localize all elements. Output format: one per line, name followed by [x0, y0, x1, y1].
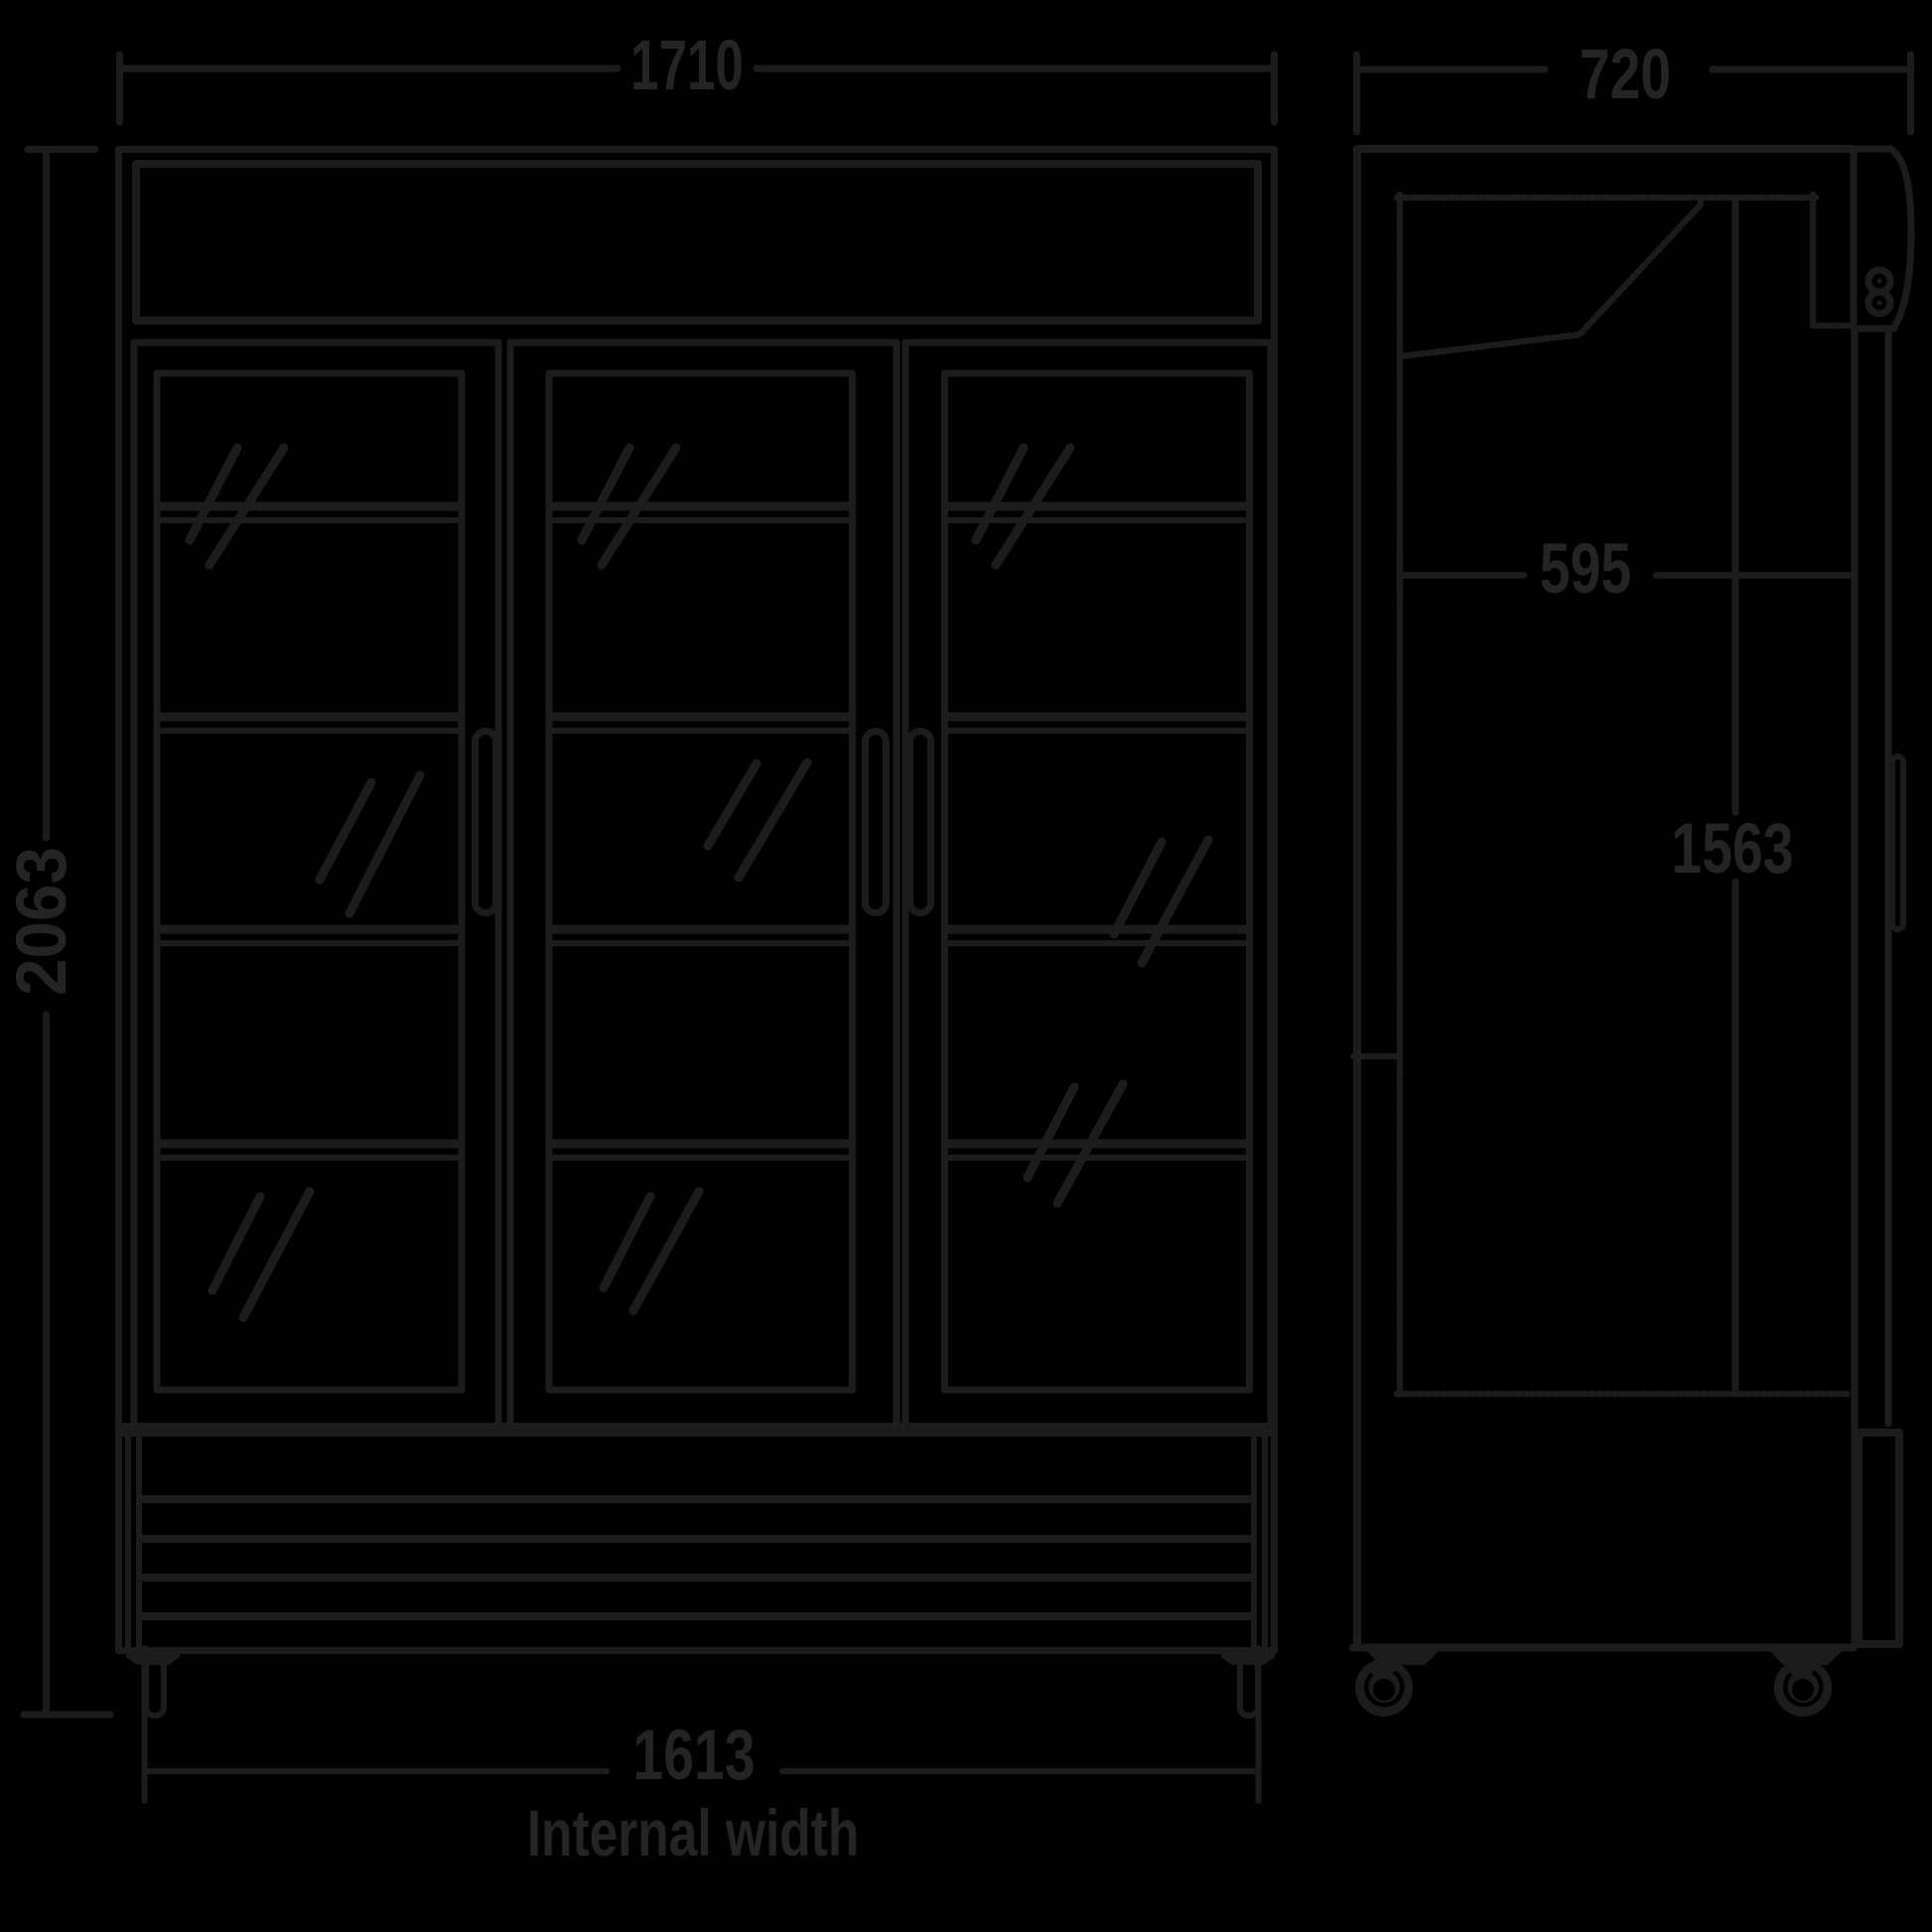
svg-text:Internal width: Internal width [527, 1796, 860, 1870]
svg-text:1563: 1563 [1671, 809, 1793, 888]
svg-text:2063: 2063 [1, 847, 80, 996]
svg-text:720: 720 [1580, 35, 1671, 113]
svg-text:595: 595 [1540, 529, 1631, 608]
svg-text:1710: 1710 [630, 27, 744, 105]
svg-text:1613: 1613 [632, 1716, 755, 1794]
